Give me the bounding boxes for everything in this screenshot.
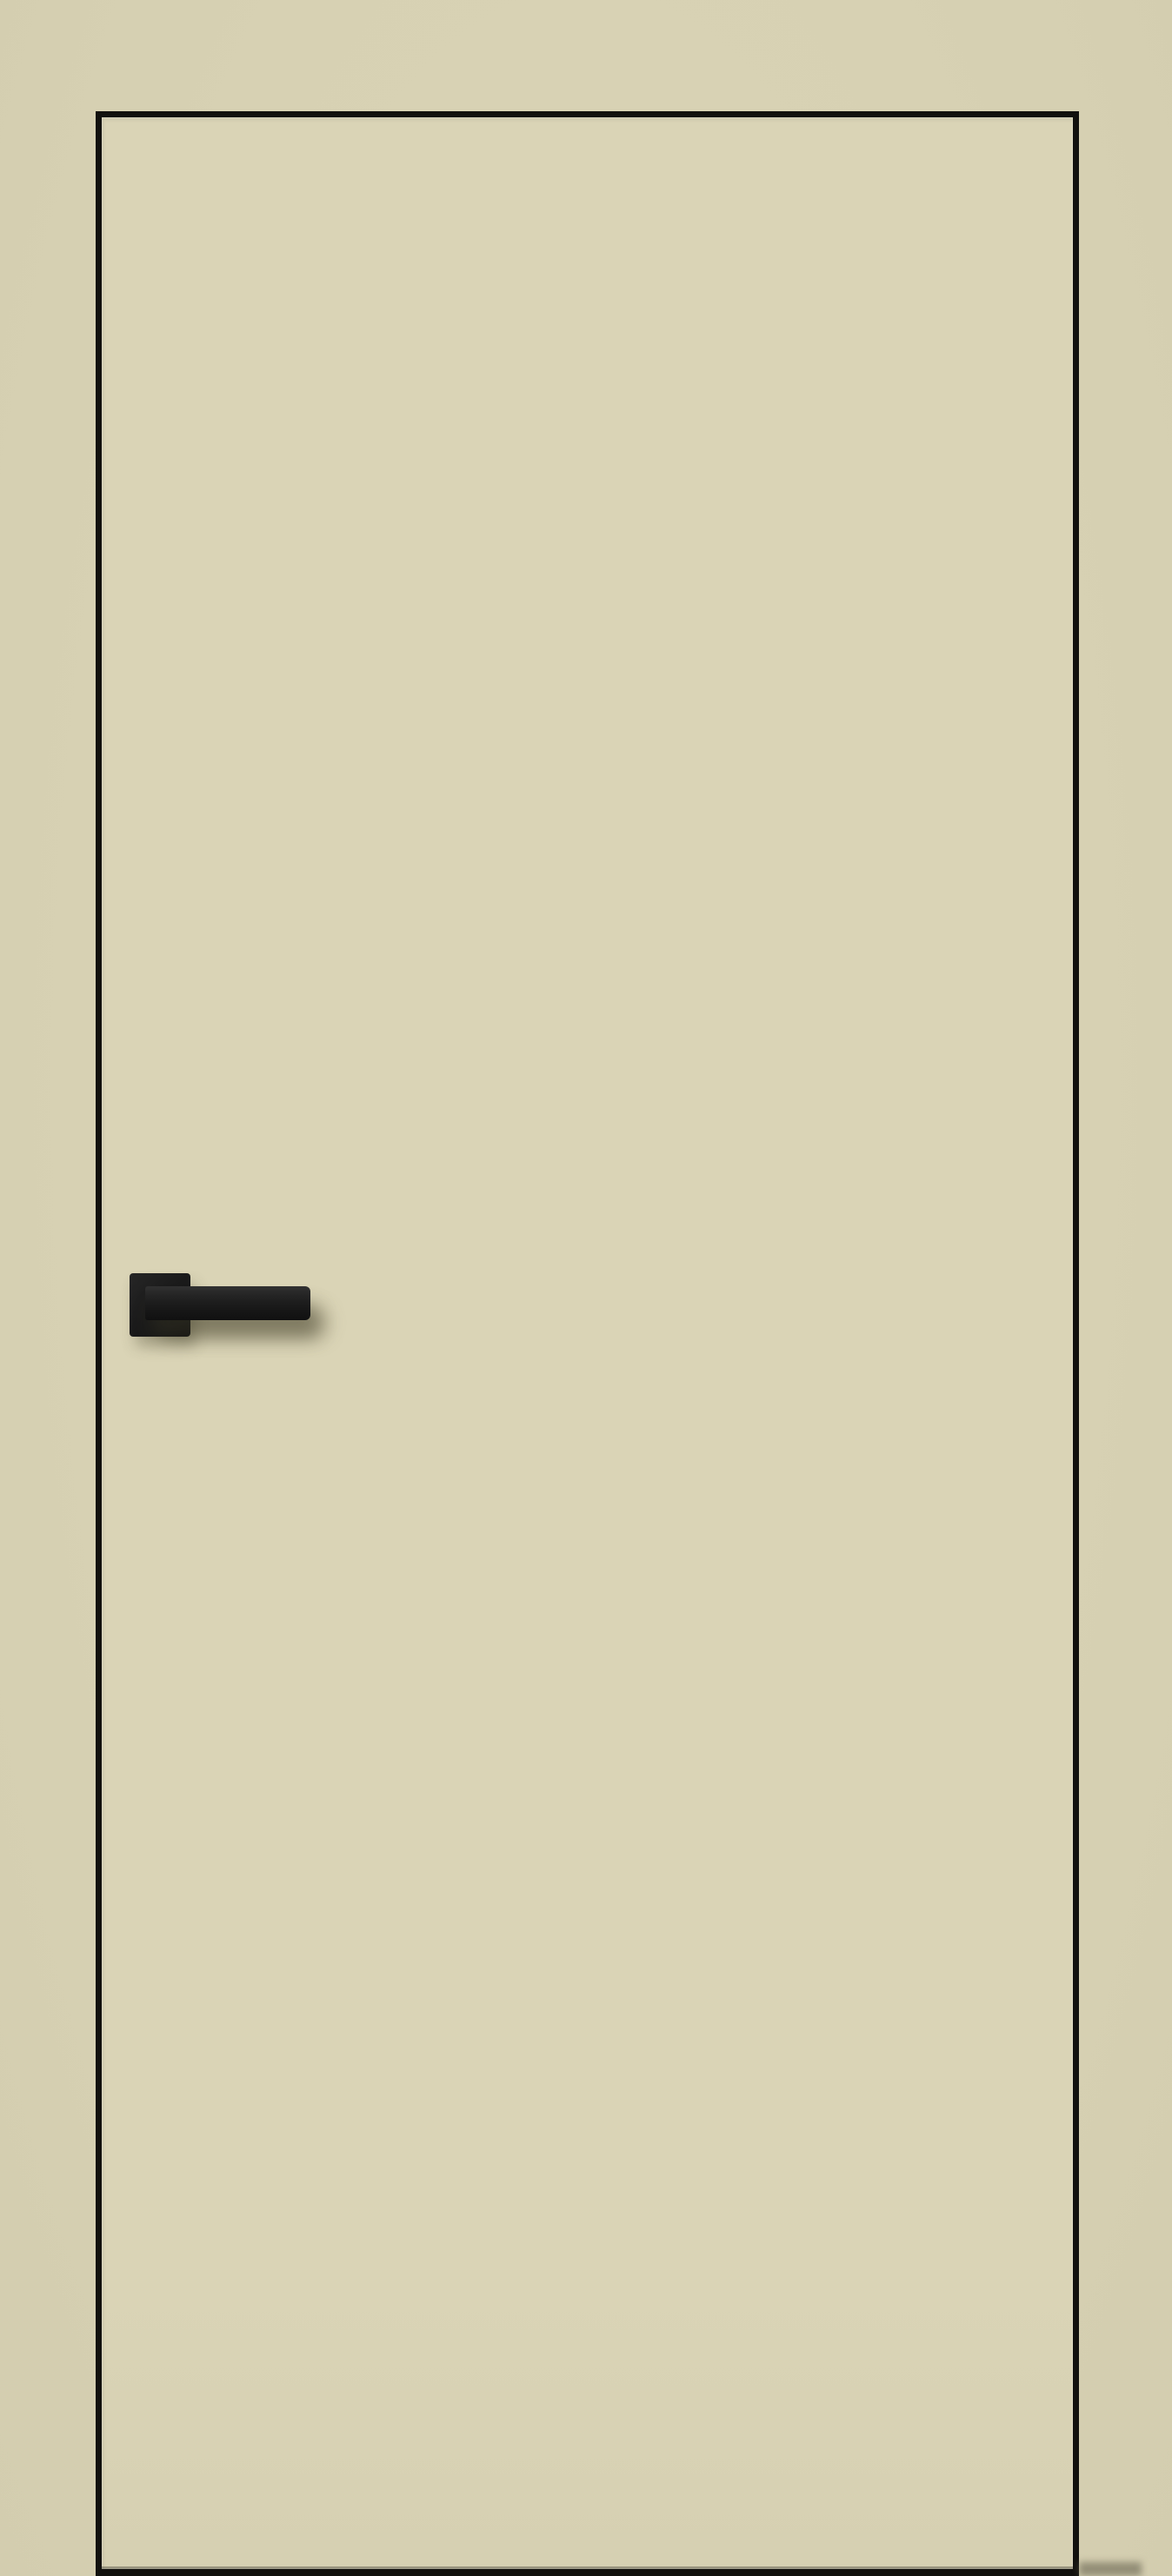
door-bottom-floor-shadow [1079, 2562, 1142, 2576]
door-product-image [0, 0, 1172, 2576]
door-leaf [96, 111, 1079, 2576]
door-handle-lever [145, 1286, 310, 1320]
